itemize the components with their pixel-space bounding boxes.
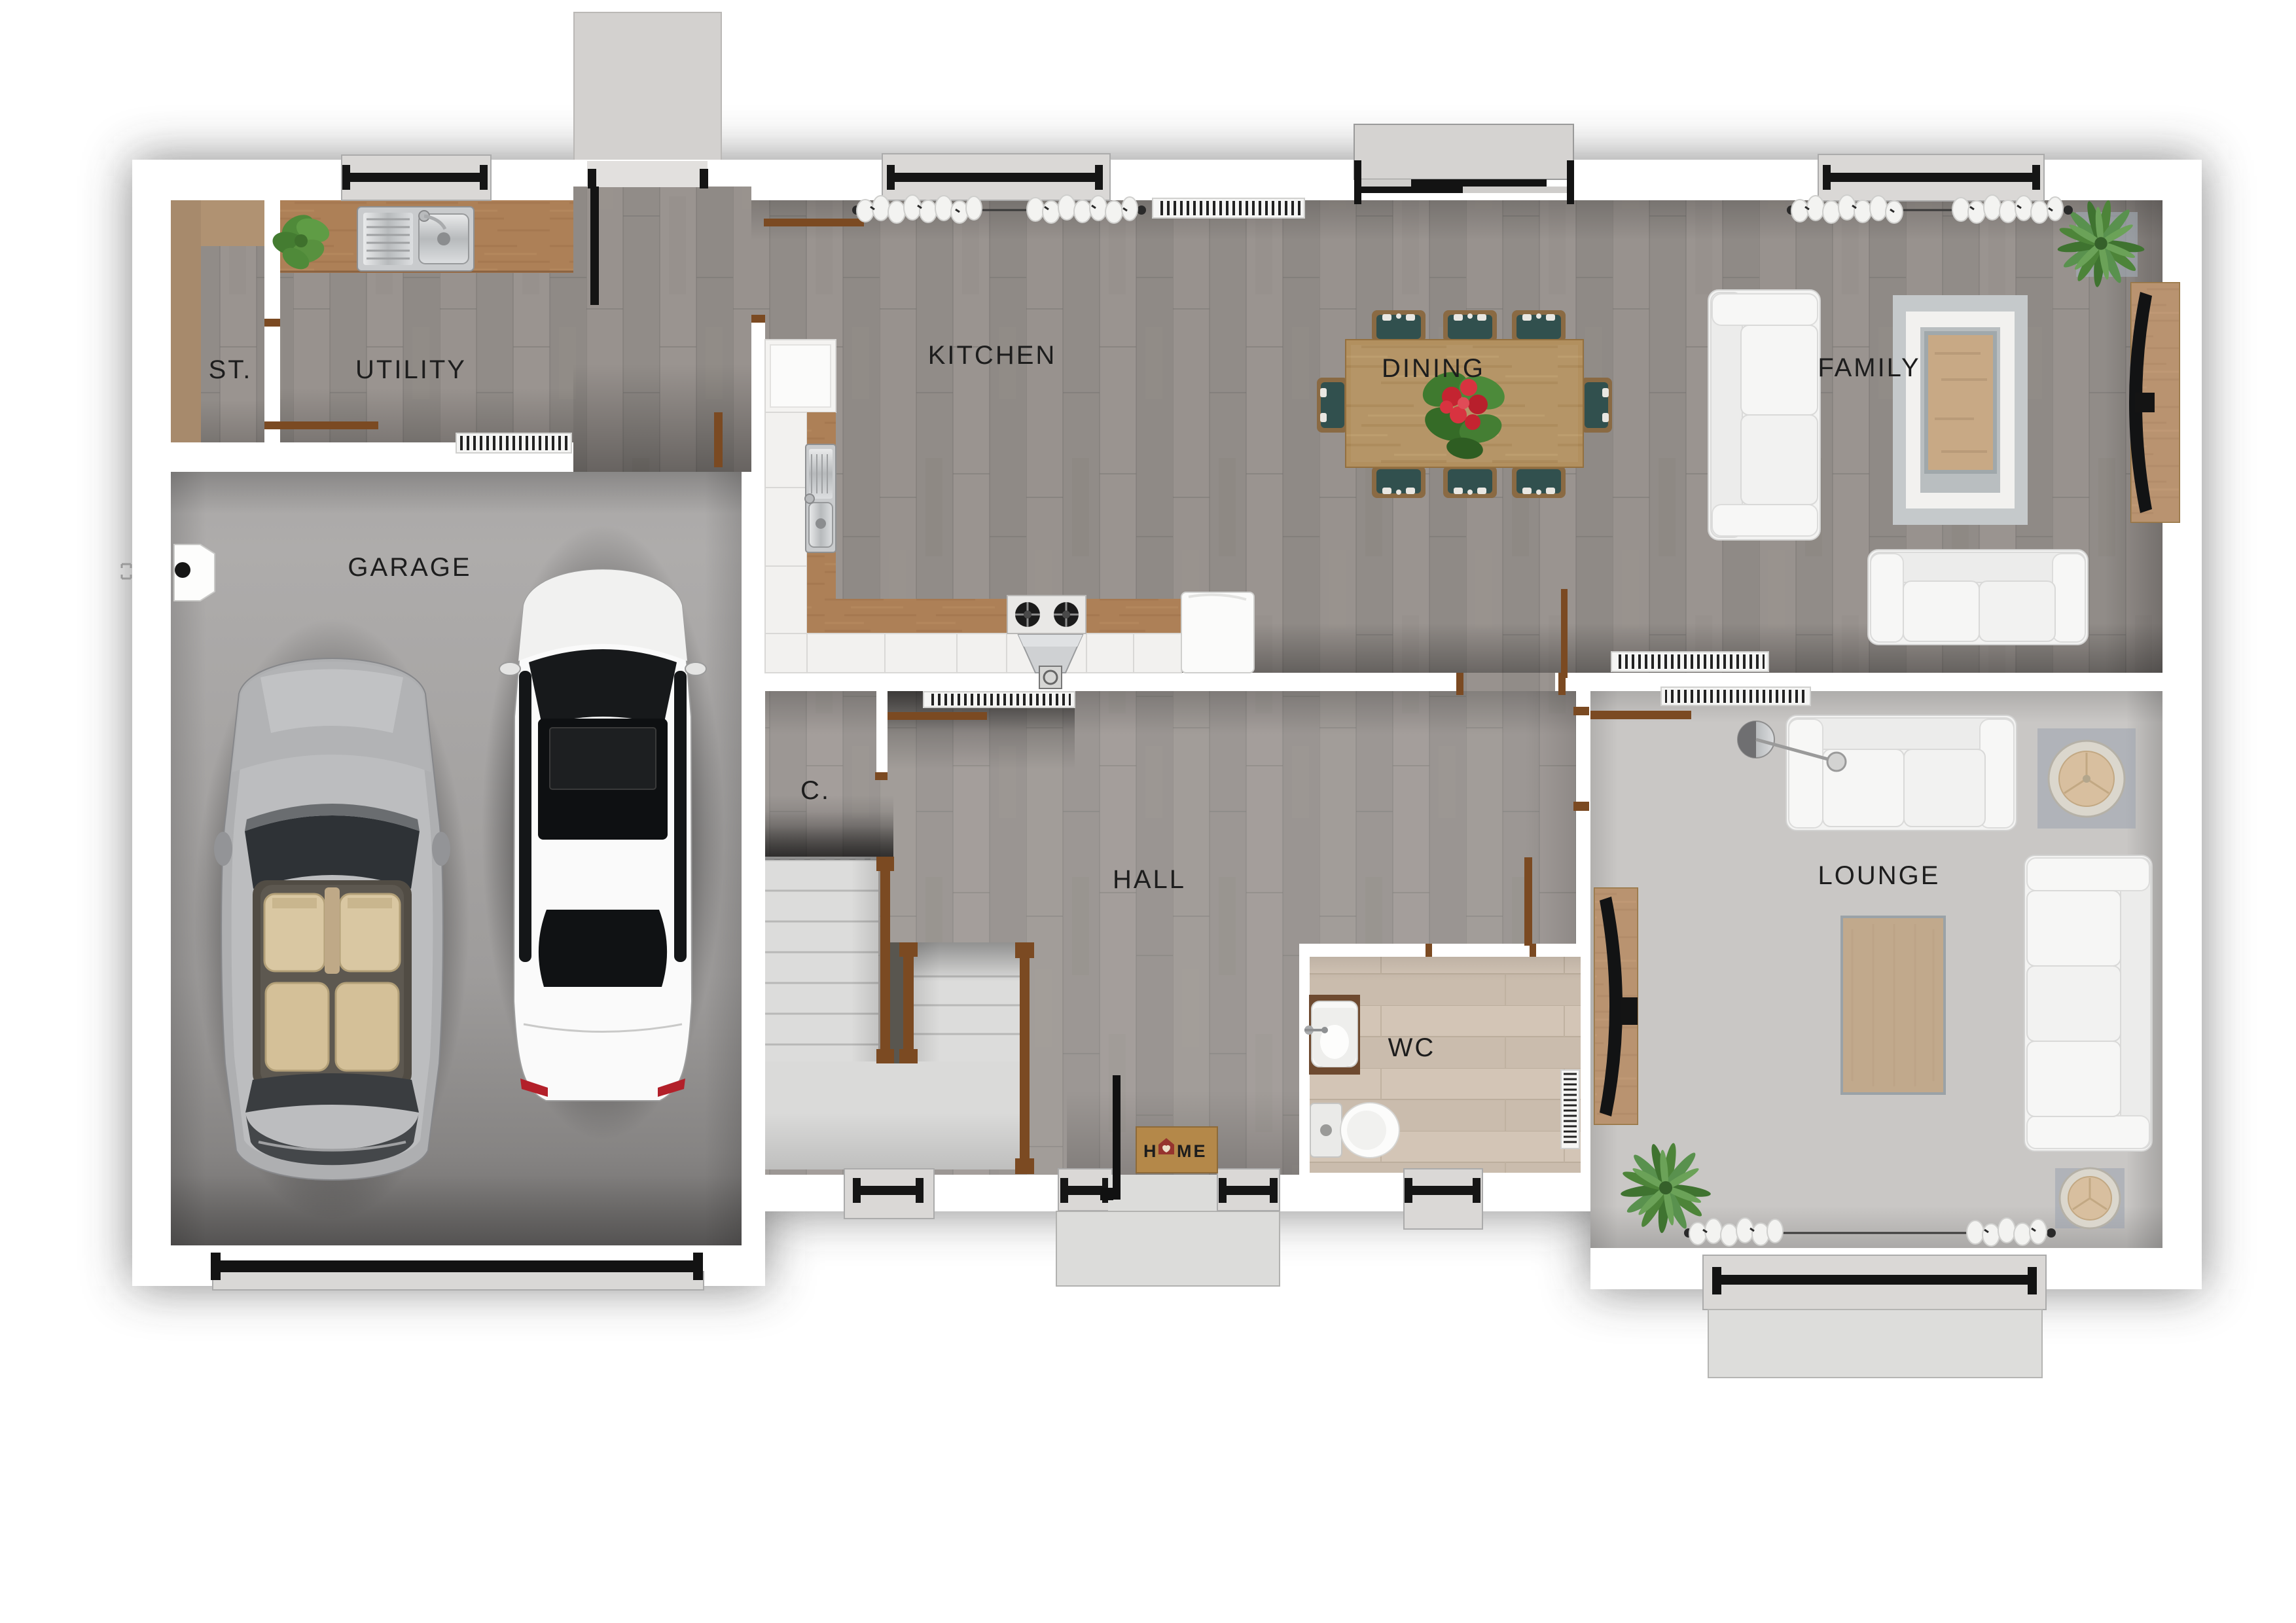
svg-text:ME: ME	[1177, 1141, 1208, 1161]
svg-text:H: H	[1143, 1141, 1158, 1161]
svg-text:DINING: DINING	[1382, 354, 1485, 383]
svg-text:WC: WC	[1388, 1033, 1436, 1062]
svg-text:C.: C.	[800, 776, 831, 805]
svg-text:KITCHEN: KITCHEN	[928, 341, 1057, 370]
svg-text:HALL: HALL	[1113, 865, 1186, 894]
svg-text:LOUNGE: LOUNGE	[1818, 861, 1941, 890]
svg-text:GARAGE: GARAGE	[348, 553, 471, 582]
svg-text:UTILITY: UTILITY	[355, 355, 467, 384]
svg-text:FAMILY: FAMILY	[1818, 353, 1920, 382]
svg-text:ST.: ST.	[209, 355, 253, 384]
